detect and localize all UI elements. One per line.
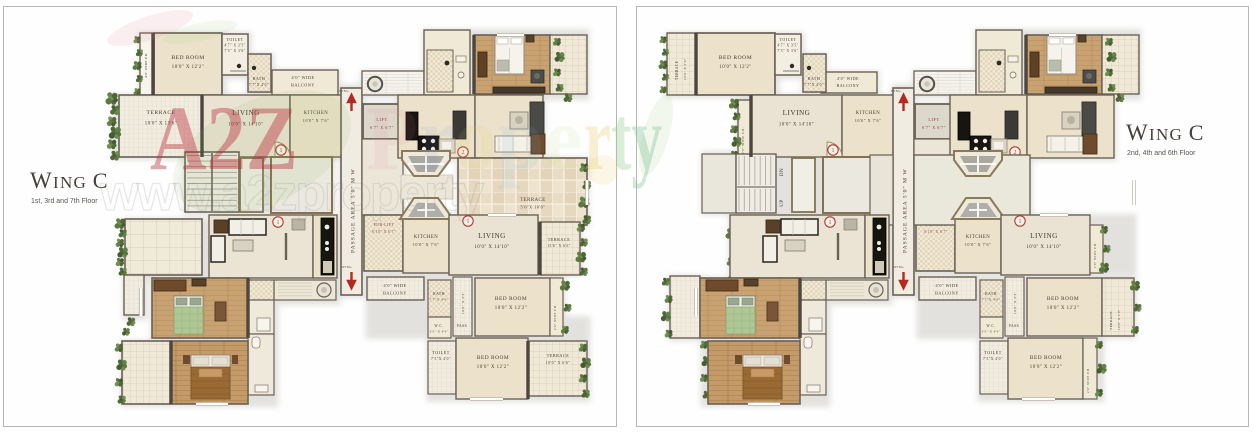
svg-text:LIFT: LIFT — [928, 117, 939, 122]
svg-text:LIVING: LIVING — [478, 232, 506, 240]
svg-text:1: 1 — [1019, 219, 1022, 225]
svg-text:10'0" X 14'10": 10'0" X 14'10" — [474, 245, 509, 250]
svg-text:3'0" X 4'0": 3'0" X 4'0" — [430, 330, 449, 334]
svg-text:10'0" X 7'6": 10'0" X 7'6" — [413, 242, 440, 247]
svg-text:10'6" X 3'5": 10'6" X 3'5" — [461, 291, 465, 314]
svg-text:7'5"X 4'0": 7'5"X 4'0" — [431, 357, 451, 361]
svg-text:KITCHEN: KITCHEN — [414, 235, 439, 240]
svg-text:BALCONY: BALCONY — [837, 83, 860, 88]
svg-text:5'0"X 10'0": 5'0"X 10'0" — [521, 205, 546, 210]
svg-text:PASSAGE AREA 5'0" M W: PASSAGE AREA 5'0" M W — [903, 168, 909, 253]
svg-text:W.C.: W.C. — [434, 324, 443, 328]
svg-text:6'10" X 6'7": 6'10" X 6'7" — [372, 230, 396, 234]
svg-text:LIVING: LIVING — [1030, 232, 1058, 240]
svg-text:10'0" X 12'2": 10'0" X 12'2" — [477, 365, 509, 370]
svg-text:KITCHEN: KITCHEN — [856, 111, 881, 116]
svg-text:7'5" X 3'6": 7'5" X 3'6" — [224, 49, 245, 53]
svg-text:10'0" X 7'6": 10'0" X 7'6" — [855, 118, 882, 123]
svg-text:1: 1 — [832, 148, 835, 154]
svg-text:4'7" X 3'5": 4'7" X 3'5" — [777, 44, 798, 48]
svg-text:PASS: PASS — [457, 324, 467, 328]
svg-text:7'7"X 4'0": 7'7"X 4'0" — [981, 298, 1000, 302]
svg-text:PUB-LIFT: PUB-LIFT — [374, 223, 395, 227]
svg-text:7'5"X 4'0": 7'5"X 4'0" — [983, 357, 1003, 361]
svg-text:10'0" X 12'2": 10'0" X 12'2" — [719, 65, 751, 70]
svg-text:10'0" X 6'0": 10'0" X 6'0" — [683, 58, 687, 80]
svg-text:WING: WING — [894, 265, 904, 269]
svg-text:TERRACE: TERRACE — [520, 198, 545, 203]
svg-text:7'7"X 4'0": 7'7"X 4'0" — [429, 298, 448, 302]
svg-text:10'0" X 12'2": 10'0" X 12'2" — [1047, 306, 1079, 311]
svg-text:WING: WING — [339, 89, 349, 93]
svg-text:UP: UP — [780, 199, 785, 206]
svg-text:7'7"X 4'0": 7'7"X 4'0" — [804, 83, 824, 87]
svg-text:PASS: PASS — [1009, 324, 1019, 328]
svg-text:2'6" WIDE P.B.: 2'6" WIDE P.B. — [1093, 242, 1097, 268]
svg-text:BATH: BATH — [808, 76, 820, 81]
svg-text:TERRACE: TERRACE — [1109, 311, 1113, 330]
svg-text:WING: WING — [342, 265, 352, 269]
svg-text:10'0" X 12'2": 10'0" X 12'2" — [172, 65, 204, 70]
svg-text:BATH: BATH — [253, 76, 265, 81]
svg-text:KITCHEN: KITCHEN — [966, 235, 991, 240]
svg-text:BATH: BATH — [985, 292, 997, 296]
svg-text:4'0" WIDE P.B.: 4'0" WIDE P.B. — [144, 52, 148, 78]
svg-text:2'6" WIDE P.B.: 2'6" WIDE P.B. — [1086, 367, 1090, 393]
svg-text:10'0" X 14'10": 10'0" X 14'10" — [779, 123, 814, 128]
svg-text:BED ROOM: BED ROOM — [1047, 296, 1079, 302]
svg-text:TOILET: TOILET — [780, 37, 797, 42]
svg-text:1st, 3rd and 7th Floor: 1st, 3rd and 7th Floor — [31, 198, 98, 205]
svg-text:10'6" X 3'5": 10'6" X 3'5" — [1013, 291, 1017, 314]
svg-text:BED ROOM: BED ROOM — [171, 55, 204, 61]
svg-text:BED ROOM: BED ROOM — [719, 55, 752, 61]
svg-text:TOILET: TOILET — [432, 350, 450, 355]
svg-text:2'6" WIDE P.B.: 2'6" WIDE P.B. — [553, 304, 557, 330]
svg-text:DN: DN — [780, 168, 785, 176]
svg-text:4'0" WIDE: 4'0" WIDE — [837, 76, 859, 81]
svg-text:BALCONY: BALCONY — [383, 291, 407, 296]
svg-text:10'0" X 7'6": 10'0" X 7'6" — [965, 242, 992, 247]
svg-text:2nd, 4th and 6th Floor: 2nd, 4th and 6th Floor — [1127, 150, 1196, 157]
svg-text:10'0" X 5'0": 10'0" X 5'0" — [1117, 309, 1121, 330]
svg-text:15'6" X 6'6": 15'6" X 6'6" — [547, 244, 571, 248]
svg-text:LIVING: LIVING — [783, 109, 811, 117]
svg-text:BATH: BATH — [433, 292, 445, 296]
svg-text:4'0" WIDE: 4'0" WIDE — [935, 283, 958, 288]
svg-text:6'7" X 6'7": 6'7" X 6'7" — [922, 125, 946, 130]
svg-text:BALCONY: BALCONY — [935, 291, 959, 296]
svg-text:4'0" WIDE: 4'0" WIDE — [383, 283, 406, 288]
svg-text:BED ROOM: BED ROOM — [495, 296, 527, 302]
svg-text:10'0" X 12'2": 10'0" X 12'2" — [1030, 365, 1062, 370]
svg-text:4'0" WIDE: 4'0" WIDE — [291, 75, 314, 80]
svg-text:A2Z: A2Z — [150, 87, 298, 189]
svg-text:W.C.: W.C. — [986, 324, 995, 328]
svg-text:BED ROOM: BED ROOM — [477, 355, 509, 361]
svg-text:10'0" X 14'10": 10'0" X 14'10" — [1026, 245, 1061, 250]
svg-text:1: 1 — [277, 220, 280, 226]
svg-text:2'6" WIDE P.B.: 2'6" WIDE P.B. — [741, 127, 745, 154]
svg-text:Prope: Prope — [366, 87, 582, 189]
svg-text:10'0" X 12'2": 10'0" X 12'2" — [495, 306, 527, 311]
svg-text:BED ROOM: BED ROOM — [1030, 355, 1062, 361]
svg-text:10'0" X 6'6": 10'0" X 6'6" — [546, 361, 571, 365]
svg-text:3'0" X 4'0": 3'0" X 4'0" — [982, 330, 1001, 334]
svg-text:TOILET: TOILET — [984, 350, 1002, 355]
svg-text:7'5" X 3'6": 7'5" X 3'6" — [777, 49, 798, 53]
svg-text:6'10" X 6'7": 6'10" X 6'7" — [924, 230, 948, 234]
svg-text:TOILET: TOILET — [227, 37, 244, 42]
svg-text:TERRACE: TERRACE — [548, 237, 571, 242]
svg-text:TERRACE: TERRACE — [675, 60, 679, 80]
svg-text:1: 1 — [829, 220, 832, 226]
svg-text:WING: WING — [891, 89, 901, 93]
svg-text:TERRACE: TERRACE — [547, 353, 570, 358]
svg-text:4'7" X 3'5": 4'7" X 3'5" — [224, 44, 245, 48]
